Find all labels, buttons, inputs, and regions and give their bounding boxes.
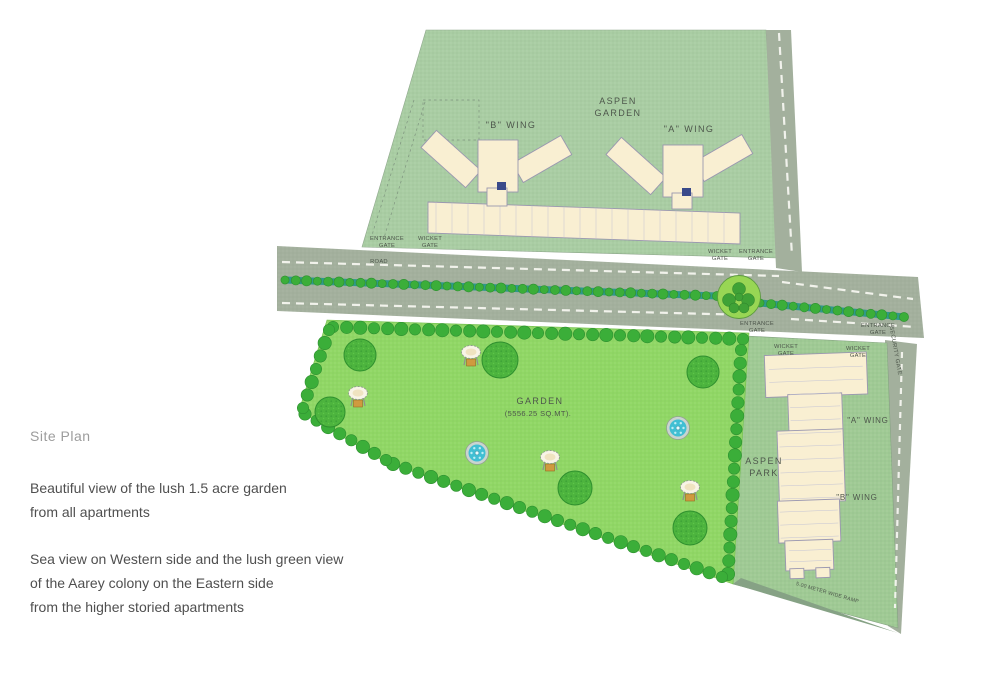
border-tree (725, 515, 737, 527)
border-tree (710, 332, 722, 344)
median-tree (453, 282, 462, 291)
gate-label: GATE (778, 351, 794, 357)
median-tree (626, 288, 636, 298)
fountain-jet (473, 457, 475, 459)
border-tree (450, 325, 461, 336)
gate-label: WICKET (774, 344, 798, 350)
text-line: Beautiful view of the lush 1.5 acre gard… (30, 480, 287, 496)
median-tree (658, 289, 668, 299)
median-tree (670, 290, 678, 298)
plan-title: Site Plan (30, 428, 370, 444)
border-tree (341, 321, 353, 333)
aspen-garden-label: GARDEN (595, 108, 642, 118)
median-tree (690, 290, 700, 300)
border-tree (505, 326, 517, 338)
b-wing-stub (487, 188, 507, 206)
border-tree (380, 454, 391, 465)
median-tree (421, 281, 430, 290)
median-tree (561, 285, 571, 295)
median-tree (518, 284, 527, 293)
big-tree-texture (560, 473, 591, 504)
median-tree (528, 284, 538, 294)
border-tree (716, 571, 727, 582)
park-building-foot (816, 567, 830, 577)
border-tree (354, 321, 367, 334)
border-tree (726, 488, 739, 501)
border-tree (724, 528, 737, 541)
median-tree (550, 285, 559, 294)
fountain (667, 417, 690, 440)
fountain-center (676, 426, 680, 430)
gazebo (541, 451, 560, 472)
border-tree (665, 553, 677, 565)
border-tree (538, 510, 551, 523)
border-tree (737, 333, 748, 344)
border-tree (733, 384, 744, 395)
border-tree (477, 325, 490, 338)
median-tree (822, 305, 830, 313)
border-tree (703, 567, 715, 579)
median-tree (346, 278, 354, 286)
gate-label: GATE (712, 256, 728, 262)
median-tree (844, 307, 854, 317)
median-tree (889, 312, 897, 320)
gate-label: ENTRANCE (370, 236, 404, 242)
gazebo-roof-top (353, 390, 364, 397)
gazebo (462, 346, 481, 367)
border-tree (436, 324, 449, 337)
gate-label: GATE (422, 243, 438, 249)
border-tree (627, 540, 639, 552)
park-building-block (777, 429, 845, 503)
median-tree (431, 281, 441, 291)
border-tree (614, 536, 627, 549)
border-tree (475, 488, 487, 500)
park-building-block (785, 539, 834, 571)
fountain (466, 442, 489, 465)
roundabout-tree (729, 303, 739, 313)
median-tree (856, 309, 864, 317)
border-tree (696, 332, 707, 343)
median-tree (540, 286, 548, 294)
border-tree (462, 483, 475, 496)
gazebo-seat (686, 494, 695, 501)
median-tree (833, 306, 842, 315)
gazebo (681, 481, 700, 502)
border-tree (587, 328, 599, 340)
median-tree (281, 276, 289, 284)
border-tree (735, 344, 746, 355)
border-tree (678, 558, 689, 569)
border-tree (655, 331, 666, 342)
gazebo-seat (546, 464, 555, 471)
border-tree (723, 332, 736, 345)
border-tree (652, 549, 665, 562)
aspen-park-label: PARK (749, 468, 778, 478)
median-tree (486, 283, 495, 292)
gazebo-roof-top (685, 484, 696, 491)
border-tree (728, 463, 739, 474)
garden-label: GARDEN (517, 396, 564, 406)
gate-label: WICKET (418, 236, 442, 242)
gazebo-roof-top (466, 349, 477, 356)
garden-area-label: (5556.25 SQ.MT). (505, 409, 571, 418)
big-tree-texture (675, 513, 706, 544)
big-tree-texture (317, 399, 344, 426)
median-tree (399, 279, 409, 289)
median-tree (411, 281, 419, 289)
median-tree (334, 277, 344, 287)
median-tree (777, 300, 787, 310)
median-tree (475, 283, 483, 291)
border-tree (723, 555, 735, 567)
border-tree (489, 493, 500, 504)
border-tree (368, 447, 380, 459)
median-tree (356, 278, 365, 287)
median-tree (615, 288, 624, 297)
gate-label: ENTRANCE (740, 321, 774, 327)
median-tree (899, 312, 908, 321)
border-tree (409, 324, 420, 335)
median-tree (877, 310, 887, 320)
fountain-jet (479, 447, 481, 449)
gazebo-seat (354, 400, 363, 407)
border-tree (641, 330, 654, 343)
median-tree (648, 289, 657, 298)
median-tree (800, 303, 809, 312)
fountain-jet (671, 427, 673, 429)
median-tree (605, 288, 613, 296)
description-paragraph-1: Beautiful view of the lush 1.5 acre gard… (30, 476, 370, 524)
border-tree (318, 336, 331, 349)
border-tree (423, 324, 435, 336)
description-panel: Site Plan Beautiful view of the lush 1.5… (30, 428, 370, 642)
fountain-jet (680, 432, 682, 434)
a-wing-stair-core (682, 188, 691, 196)
fountain-jet (674, 422, 676, 424)
median-tree (810, 303, 820, 313)
median-tree (313, 277, 321, 285)
b-wing-stair-core (497, 182, 506, 190)
border-tree (368, 323, 379, 334)
border-tree (437, 475, 449, 487)
border-tree (551, 514, 563, 526)
border-tree (729, 436, 741, 448)
median-tree (767, 300, 776, 309)
border-tree (726, 502, 737, 513)
median-tree (866, 309, 875, 318)
border-tree (734, 357, 746, 369)
border-tree (395, 322, 408, 335)
border-tree (314, 350, 326, 362)
gate-label: GATE (379, 243, 395, 249)
gate-label: ENTRANCE (861, 323, 895, 329)
border-tree (424, 470, 437, 483)
border-tree (451, 480, 462, 491)
border-tree (690, 562, 703, 575)
aspen-garden-label: ASPEN (599, 96, 637, 106)
fountain-jet (473, 447, 475, 449)
border-tree (297, 402, 308, 413)
median-tree (593, 287, 603, 297)
border-tree (559, 327, 572, 340)
border-tree (518, 326, 531, 339)
gate-label: GATE (850, 353, 866, 359)
gate-label: GATE (748, 256, 764, 262)
median-tree (702, 292, 710, 300)
border-tree (628, 330, 640, 342)
border-tree (733, 370, 746, 383)
garden-b-wing-label: "B" WING (486, 120, 537, 130)
fountain-jet (479, 457, 481, 459)
border-tree (724, 542, 735, 553)
gate-label: WICKET (846, 346, 870, 352)
border-tree (727, 476, 739, 488)
border-tree (400, 462, 412, 474)
fountain-jet (680, 422, 682, 424)
border-tree (728, 449, 741, 462)
border-tree (600, 328, 613, 341)
border-tree (640, 545, 651, 556)
fountain-center (475, 451, 479, 455)
gazebo (349, 387, 368, 408)
text-line: from the higher storied apartments (30, 599, 244, 615)
big-tree-texture (484, 344, 517, 377)
border-tree (310, 363, 321, 374)
border-tree (589, 527, 601, 539)
border-tree (732, 397, 744, 409)
border-tree (602, 532, 613, 543)
median-tree (789, 302, 797, 310)
aspen-park-label: ASPEN (745, 456, 783, 466)
gate-label: GATE (749, 328, 765, 334)
gazebo-seat (467, 359, 476, 366)
big-tree-texture (689, 358, 718, 387)
fountain-jet (674, 432, 676, 434)
median-tree (388, 279, 397, 288)
roundabout-tree (739, 303, 749, 313)
big-tree-texture (346, 341, 375, 370)
roundabout-tree (735, 293, 743, 301)
median-tree (366, 278, 376, 288)
border-tree (527, 506, 538, 517)
border-tree (382, 322, 394, 334)
median-tree (508, 284, 516, 292)
fountain-jet (481, 452, 483, 454)
description-paragraph-2: Sea view on Western side and the lush gr… (30, 547, 370, 619)
border-tree (669, 331, 681, 343)
gate-label: WICKET (708, 249, 732, 255)
park-b-wing-label: "B" WING (836, 493, 877, 502)
median-tree (464, 282, 474, 292)
median-tree (378, 280, 386, 288)
median-tree (680, 290, 689, 299)
border-tree (532, 327, 543, 338)
park-a-wing-label: "A" WING (847, 416, 888, 425)
border-tree (413, 467, 424, 478)
border-tree (500, 496, 513, 509)
border-tree (546, 327, 558, 339)
garden-a-wing-label: "A" WING (664, 124, 715, 134)
gazebo-roof-top (545, 454, 556, 461)
text-line: Sea view on Western side and the lush gr… (30, 551, 343, 567)
border-tree (576, 523, 589, 536)
median-tree (496, 283, 506, 293)
median-tree (302, 276, 312, 286)
park-building-block (788, 393, 843, 433)
text-line: from all apartments (30, 504, 150, 520)
border-tree (301, 389, 313, 401)
border-tree (573, 329, 584, 340)
border-tree (565, 519, 576, 530)
roundabout (718, 276, 761, 319)
text-line: of the Aarey colony on the Eastern side (30, 575, 274, 591)
median-tree (637, 289, 645, 297)
border-tree (513, 501, 525, 513)
border-tree (491, 326, 502, 337)
border-tree (305, 375, 318, 388)
park-building-foot (790, 568, 804, 578)
gate-label: ENTRANCE (739, 249, 773, 255)
border-tree (323, 324, 334, 335)
border-tree (731, 409, 744, 422)
fountain-jet (682, 427, 684, 429)
road-label: ROAD (370, 259, 388, 265)
fountain-jet (470, 452, 472, 454)
median-tree (573, 287, 581, 295)
border-tree (614, 330, 625, 341)
border-tree (731, 423, 742, 434)
median-tree (443, 282, 451, 290)
border-tree (464, 325, 476, 337)
border-tree (682, 331, 695, 344)
median-tree (583, 287, 592, 296)
median-tree (324, 277, 333, 286)
gate-label: GATE (870, 330, 886, 336)
site-plan-page: { "colors": { "aspen-garden-green": "#a9… (0, 0, 982, 699)
median-tree (291, 276, 300, 285)
